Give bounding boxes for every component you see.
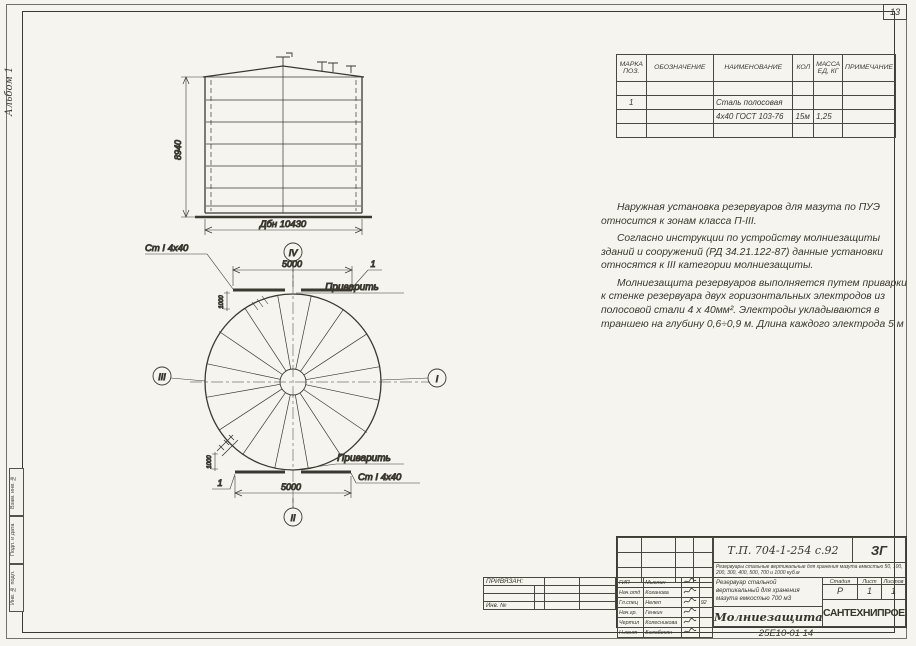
parts-header-row: Марка поз. Обозначение Наименование Кол … [617,55,896,82]
document-code-suffix: ЗГ [852,537,906,563]
table-row: 1 Сталь полосовая [617,96,896,110]
document-code: Т.П. 704-1-254 с.92 [713,537,853,563]
signature-mark [684,598,696,603]
signature-mark [684,578,696,583]
role-row: ГИП Мыслин [618,578,713,588]
object-title: Резервуар стальной вертикальный для хран… [713,577,823,607]
height-dim-text: 8940 [173,140,183,160]
sheet-number: 1 [857,584,882,600]
note-paragraph-1: Наружная установка резервуаров для мазут… [601,201,907,228]
col-header-name: Наименование [714,55,793,82]
weld-label-bottom: Приварить [337,453,391,464]
elevation-diameter-dimension: Дбн 10430 [205,219,362,235]
tank-plan-view: Приварить 5000 1 Ст I 4х40 1000 [145,243,446,526]
linked-project-table: ПРИВЯЗАН: Инв. № [483,577,616,610]
parts-list-table: Марка поз. Обозначение Наименование Кол … [616,54,896,138]
drawing-sheet: 13 Альбом 1 Взам. инв. № Подп. и дата Ин… [0,0,916,646]
item-mark-bottom: 1 [217,478,222,488]
balloon-left-label: III [158,372,166,382]
signature-date: 92 [699,598,712,608]
col-header-mass: Масса ед, кг [814,55,843,82]
electrode-strip-top: Приварить 5000 1 Ст I 4х40 1000 [145,243,404,311]
offset-top-text: 1000 [219,295,225,309]
signature-mark [684,628,696,633]
document-number: 25Е10-01 14 [716,628,856,639]
signature-mark [684,618,696,623]
offset-bottom-text: 1000 [207,455,213,469]
roof-nozzle-4 [346,66,356,73]
stage-value: Р [822,584,858,600]
electrode-strip-bottom: Приварить 5000 1 Ст I 4х40 1000 [207,452,420,498]
balloon-bottom-label: II [290,513,296,523]
roof-nozzle-center [276,53,292,66]
roof-nozzle-2 [317,62,327,71]
linked-label: ПРИВЯЗАН: [484,578,545,586]
role-row: Чертил Колесникова [618,618,713,628]
signature-mark [684,588,696,593]
diameter-dim-text: Дбн 10430 [259,219,307,230]
table-row: 4х40 ГОСТ 103-7615м 1,25 [617,110,896,124]
col-header-note: Примечание [843,55,896,82]
sheet-title: Молниезащита [713,606,823,627]
table-row [617,82,896,96]
balloon-right-label: I [436,374,439,384]
role-row: Н.конт Балабекян [618,628,713,638]
elevation-height-dimension: 8940 [173,77,203,217]
note-paragraph-2: Согласно инструкции по устройству молние… [601,232,907,273]
ladder-detail [217,435,238,456]
role-row: Гл.спец Нелеп 92 [618,598,713,608]
role-row: Нач.гр. Генкин [618,608,713,618]
col-header-mark: Марка поз. [617,55,647,82]
tank-elevation-view: 8940 Дбн 10430 [173,53,372,235]
roof-nozzle-3 [328,63,338,72]
note-paragraph-3: Молниезащита резервуаров выполняется пут… [601,277,907,331]
col-header-designation: Обозначение [646,55,713,82]
steel-label-top: Ст I 4х40 [145,243,189,254]
inventory-number-label: Инв. № [484,602,535,610]
dim-bottom-text: 5000 [281,482,301,492]
col-header-qty: Кол [793,55,814,82]
balloon-top-label: IV [289,248,299,258]
signature-rows: ГИП Мыслин Нач.отд Коганова Гл.спец Неле… [617,577,713,638]
role-row: Нач.отд Коганова [618,588,713,598]
general-notes: Наружная установка резервуаров для мазут… [601,201,907,335]
table-row [617,124,896,138]
sheets-total: 1 [881,584,906,600]
item-mark-top: 1 [370,259,375,269]
organization-name: САНТЕХНИПРОЕКТ [822,599,906,627]
title-block: ГИП Мыслин Нач.отд Коганова Гл.спец Неле… [616,536,907,628]
signature-mark [684,608,696,613]
steel-label-bottom: Ст I 4х40 [358,472,402,483]
series-note: Резервуары стальные вертикальные для хра… [713,562,906,578]
